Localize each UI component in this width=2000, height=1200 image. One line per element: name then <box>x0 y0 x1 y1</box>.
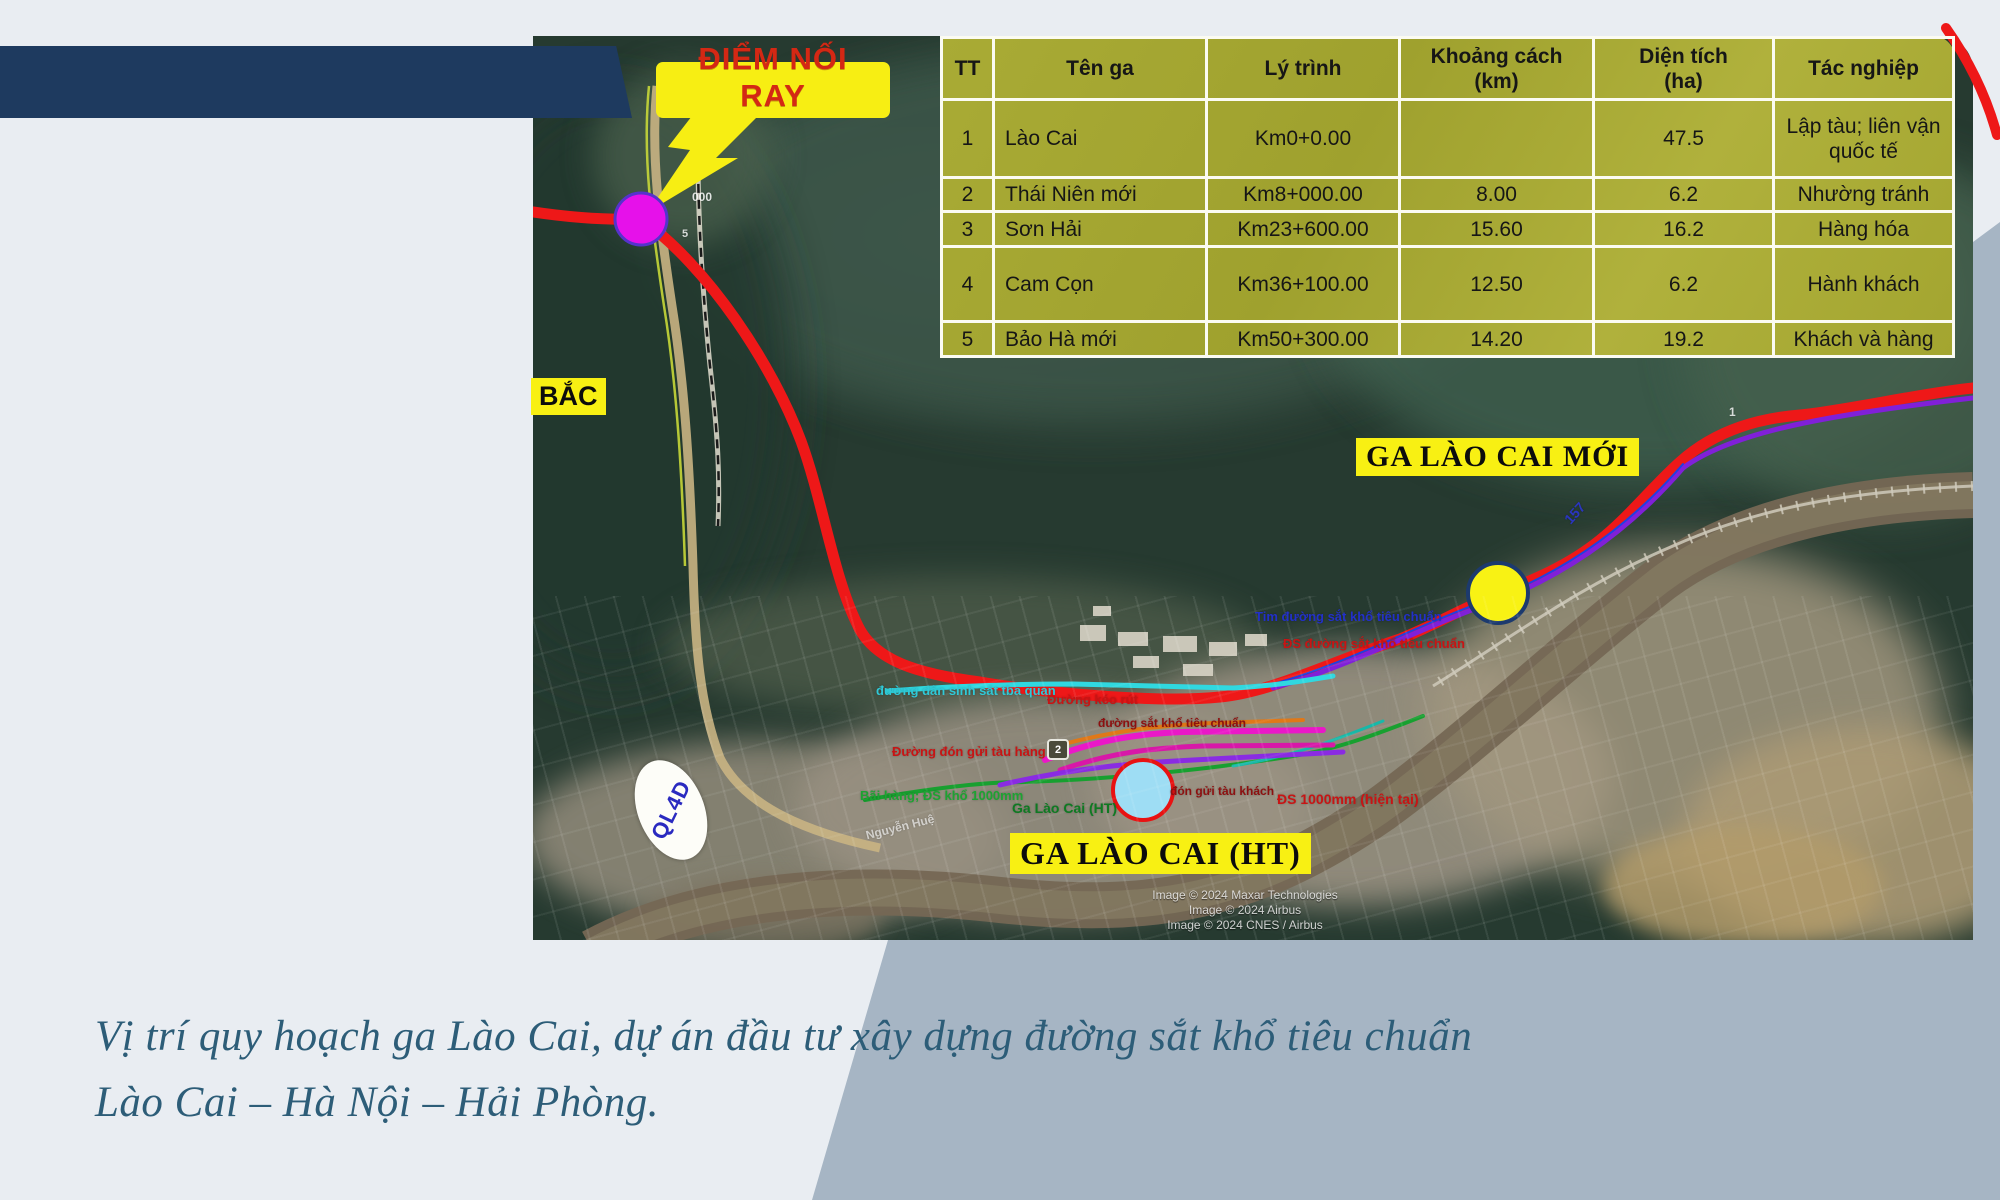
highway-ql4d-label: QL4D <box>646 776 697 844</box>
table-row: 5Bảo Hà mớiKm50+300.0014.2019.2Khách và … <box>942 322 1954 357</box>
station-table: TTTên gaLý trìnhKhoảng cách (km)Diện tíc… <box>940 36 1955 358</box>
table-cell: Lào Cai <box>994 100 1207 178</box>
station-table-body: 1Lào CaiKm0+0.0047.5Lập tàu; liên vận qu… <box>942 100 1954 357</box>
table-cell: Khách và hàng <box>1774 322 1954 357</box>
table-cell: 8.00 <box>1400 178 1594 212</box>
table-cell: 15.60 <box>1400 212 1594 247</box>
table-cell: 19.2 <box>1594 322 1774 357</box>
table-cell: Thái Niên mới <box>994 178 1207 212</box>
existing-station-label: GA LÀO CAI (HT) <box>1010 833 1311 874</box>
table-cell: 3 <box>942 212 994 247</box>
page-canvas: TTTên gaLý trìnhKhoảng cách (km)Diện tíc… <box>0 0 2000 1200</box>
top-navy-bar <box>0 46 632 118</box>
table-header-cell: Diện tích (ha) <box>1594 38 1774 100</box>
table-row: 1Lào CaiKm0+0.0047.5Lập tàu; liên vận qu… <box>942 100 1954 178</box>
table-header-cell: Khoảng cách (km) <box>1400 38 1594 100</box>
table-cell <box>1400 100 1594 178</box>
photo-caption: Vị trí quy hoạch ga Lào Cai, dự án đầu t… <box>95 1004 1472 1136</box>
new-station-label: GA LÀO CAI MỚI <box>1356 438 1639 476</box>
table-cell: Lập tàu; liên vận quốc tế <box>1774 100 1954 178</box>
caption-line1: Vị trí quy hoạch ga Lào Cai, dự án đầu t… <box>95 1004 1472 1070</box>
table-cell: Km50+300.00 <box>1207 322 1400 357</box>
attribution-line: Image © 2024 Airbus <box>1130 903 1360 918</box>
callout-line2: RAY <box>640 77 906 114</box>
callout-line1: ĐIỂM NỐI <box>640 40 906 77</box>
table-cell: Km8+000.00 <box>1207 178 1400 212</box>
table-cell: 6.2 <box>1594 178 1774 212</box>
route-2-shield: 2 <box>1047 739 1069 760</box>
table-cell: Bảo Hà mới <box>994 322 1207 357</box>
table-cell: 5 <box>942 322 994 357</box>
table-cell: 4 <box>942 247 994 322</box>
table-cell: 16.2 <box>1594 212 1774 247</box>
table-cell: 47.5 <box>1594 100 1774 178</box>
caption-line2: Lào Cai – Hà Nội – Hải Phòng. <box>95 1070 1472 1136</box>
table-row: 4Cam CọnKm36+100.0012.506.2Hành khách <box>942 247 1954 322</box>
attribution-line: Image © 2024 Maxar Technologies <box>1130 888 1360 903</box>
table-row: 2Thái Niên mớiKm8+000.008.006.2Nhường tr… <box>942 178 1954 212</box>
table-cell: Cam Cọn <box>994 247 1207 322</box>
table-cell: 12.50 <box>1400 247 1594 322</box>
table-header-cell: Tên ga <box>994 38 1207 100</box>
table-cell: Hành khách <box>1774 247 1954 322</box>
table-cell: 6.2 <box>1594 247 1774 322</box>
table-cell: Nhường tránh <box>1774 178 1954 212</box>
table-cell: Sơn Hải <box>994 212 1207 247</box>
table-cell: Hàng hóa <box>1774 212 1954 247</box>
table-cell: 1 <box>942 100 994 178</box>
station-table-header-row: TTTên gaLý trìnhKhoảng cách (km)Diện tíc… <box>942 38 1954 100</box>
table-header-cell: Lý trình <box>1207 38 1400 100</box>
table-cell: Km0+0.00 <box>1207 100 1400 178</box>
table-cell: 2 <box>942 178 994 212</box>
table-cell: 14.20 <box>1400 322 1594 357</box>
attribution-line: Image © 2024 CNES / Airbus <box>1130 918 1360 933</box>
table-row: 3Sơn HảiKm23+600.0015.6016.2Hàng hóa <box>942 212 1954 247</box>
rail-connection-callout-text: ĐIỂM NỐI RAY <box>640 40 906 114</box>
north-label: BẮC <box>531 378 606 415</box>
table-header-cell: Tác nghiệp <box>1774 38 1954 100</box>
table-header-cell: TT <box>942 38 994 100</box>
map-attribution: Image © 2024 Maxar TechnologiesImage © 2… <box>1130 888 1360 933</box>
table-cell: Km23+600.00 <box>1207 212 1400 247</box>
table-cell: Km36+100.00 <box>1207 247 1400 322</box>
rail-junction-marker <box>615 193 667 245</box>
